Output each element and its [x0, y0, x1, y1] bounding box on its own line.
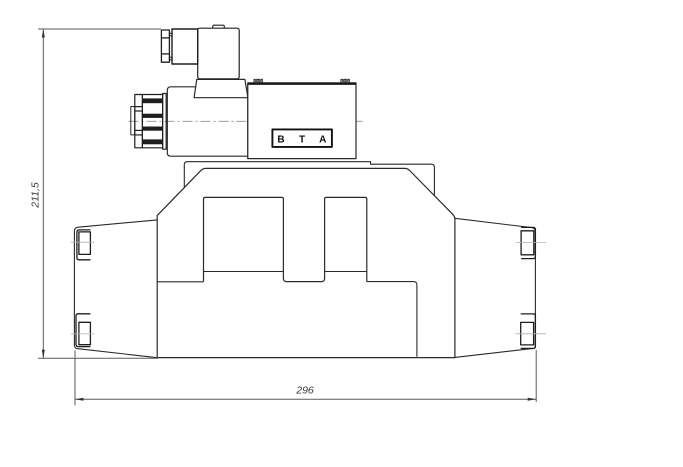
svg-text:296: 296 — [295, 385, 314, 397]
svg-text:T: T — [299, 134, 305, 145]
svg-text:A: A — [319, 134, 326, 145]
svg-text:B: B — [277, 134, 284, 145]
svg-text:211,5: 211,5 — [30, 182, 42, 209]
